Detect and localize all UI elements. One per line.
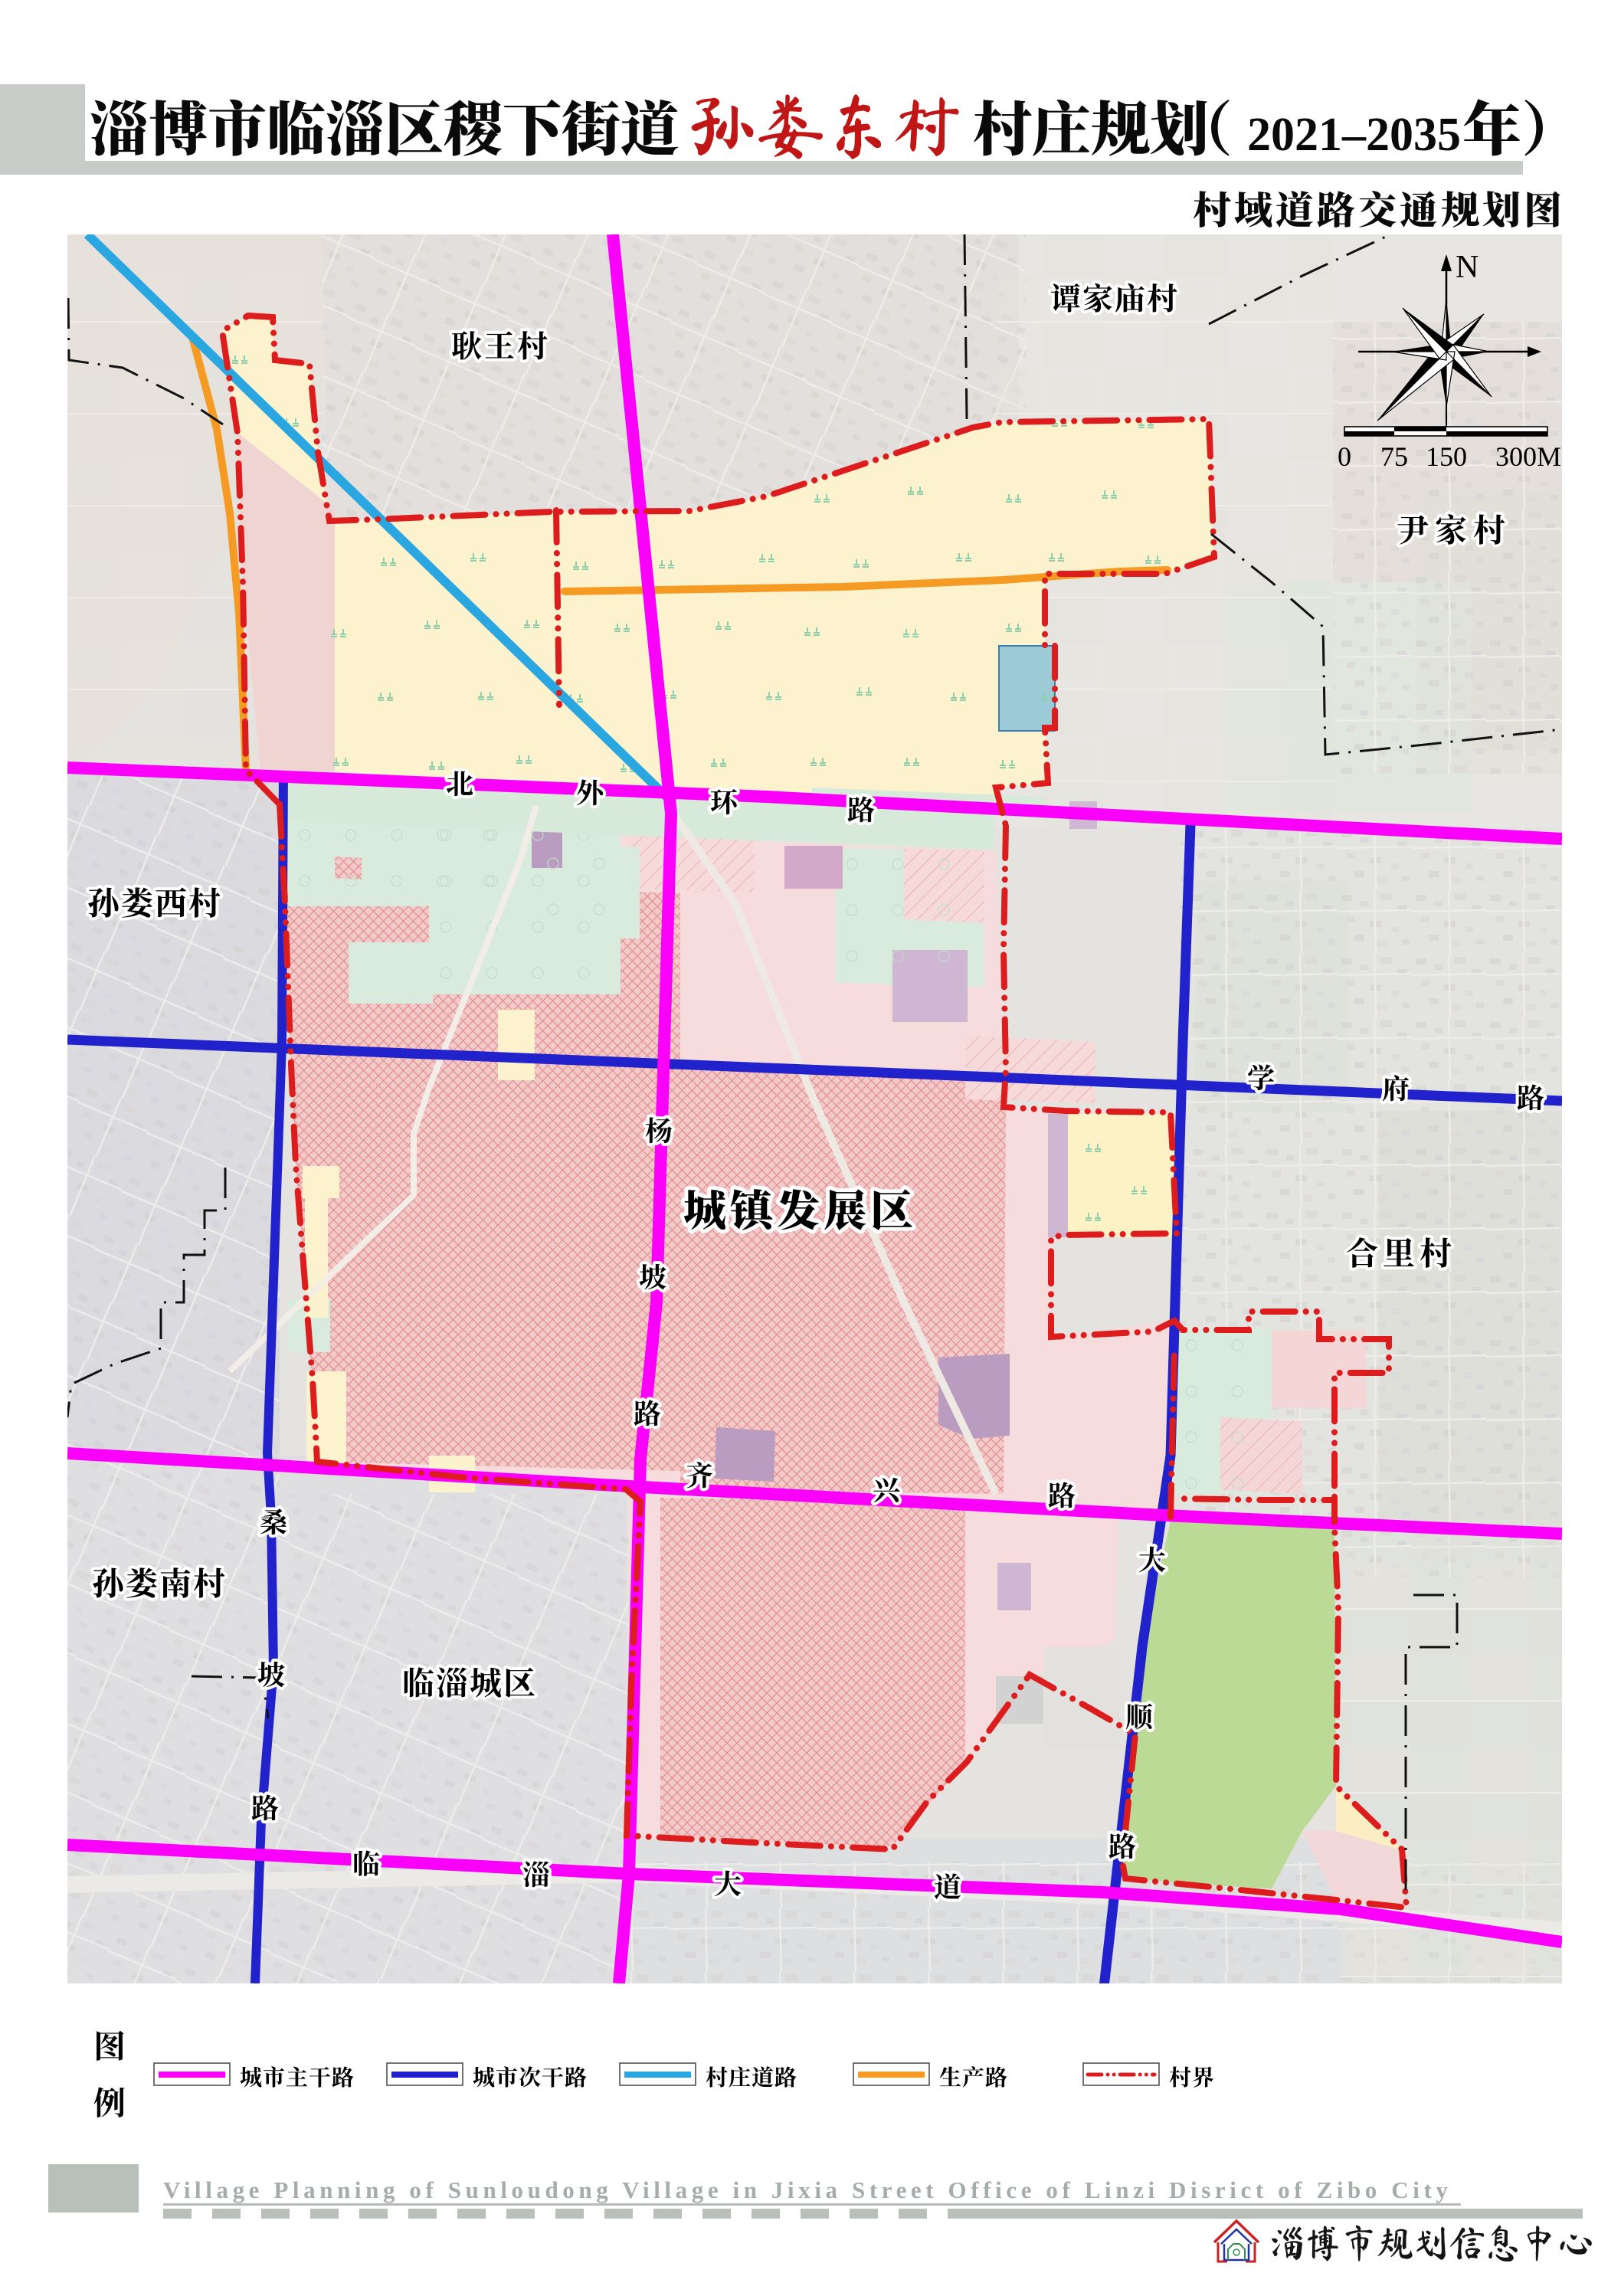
svg-text:300M: 300M <box>1495 441 1561 472</box>
svg-text:150: 150 <box>1426 441 1467 472</box>
svg-text:0: 0 <box>1338 441 1351 472</box>
svg-text:N: N <box>1456 250 1479 285</box>
svg-text:75: 75 <box>1380 441 1408 472</box>
svg-text:2021–2035: 2021–2035 <box>1247 109 1461 161</box>
svg-text:Village Planning of Sunloudong: Village Planning of Sunloudong Village i… <box>163 2176 1452 2203</box>
